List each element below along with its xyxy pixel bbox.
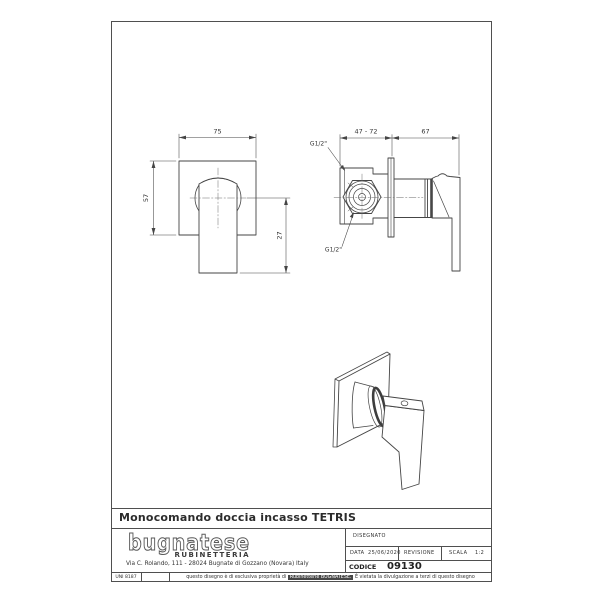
field-scala-value: 1:2 [475, 550, 484, 556]
iso-handle-front [382, 406, 424, 490]
side-handle [432, 174, 460, 271]
field-codice-label: CODICE [349, 563, 376, 571]
dim-front-height: 57 [142, 194, 150, 202]
thread-top-label: G1/2" [310, 141, 327, 148]
field-data-value: 25/06/2020 [368, 550, 401, 556]
front-view: 75 57 27 [142, 128, 290, 274]
dim-side-projection: 67 [421, 128, 429, 136]
drawing-sheet: 75 57 27 [0, 0, 600, 600]
footer-norm: UNI 8187 [111, 575, 141, 580]
rule-title-bottom [111, 528, 492, 529]
rule-title-top [111, 508, 492, 509]
footer-note: questo disegno è di esclusiva proprietà … [169, 575, 492, 580]
product-title: Monocomando doccia incasso TETRIS [119, 511, 356, 524]
brand-address: Via C. Rolando, 111 - 28024 Bugnate di G… [126, 561, 309, 567]
front-handle [199, 178, 237, 273]
dim-front-handle-drop: 27 [276, 231, 284, 239]
iso-view [333, 352, 424, 490]
thread-bottom-label: G1/2" [325, 247, 342, 254]
rule-revisione-scala [441, 546, 442, 560]
field-disegnato: DISEGNATO [353, 533, 386, 539]
field-codice-value: 09130 [387, 561, 422, 572]
rule-data-top [345, 546, 492, 547]
footer-note-suffix: È vietata la divulgazione a terzi di que… [355, 575, 475, 580]
rule-block-divider [345, 528, 346, 573]
drawing-area: 75 57 27 [111, 21, 493, 508]
footer-note-highlight: Rubinetterie BUGNATESE. [288, 575, 354, 580]
footer-note-prefix: questo disegno è di esclusiva proprietà … [186, 575, 286, 580]
brand-subtitle: RUBINETTERIA [126, 551, 250, 559]
dim-side-wall-range: 47 - 72 [354, 128, 377, 136]
dim-front-width: 75 [213, 128, 221, 136]
field-revisione-label: REVISIONE [404, 550, 435, 556]
field-data-label: DATA [350, 550, 364, 556]
field-scala-label: SCALA [449, 550, 467, 556]
side-view: 47 - 72 67 G1/2" G1/2" [310, 128, 460, 272]
rule-norm-cell [141, 572, 142, 582]
